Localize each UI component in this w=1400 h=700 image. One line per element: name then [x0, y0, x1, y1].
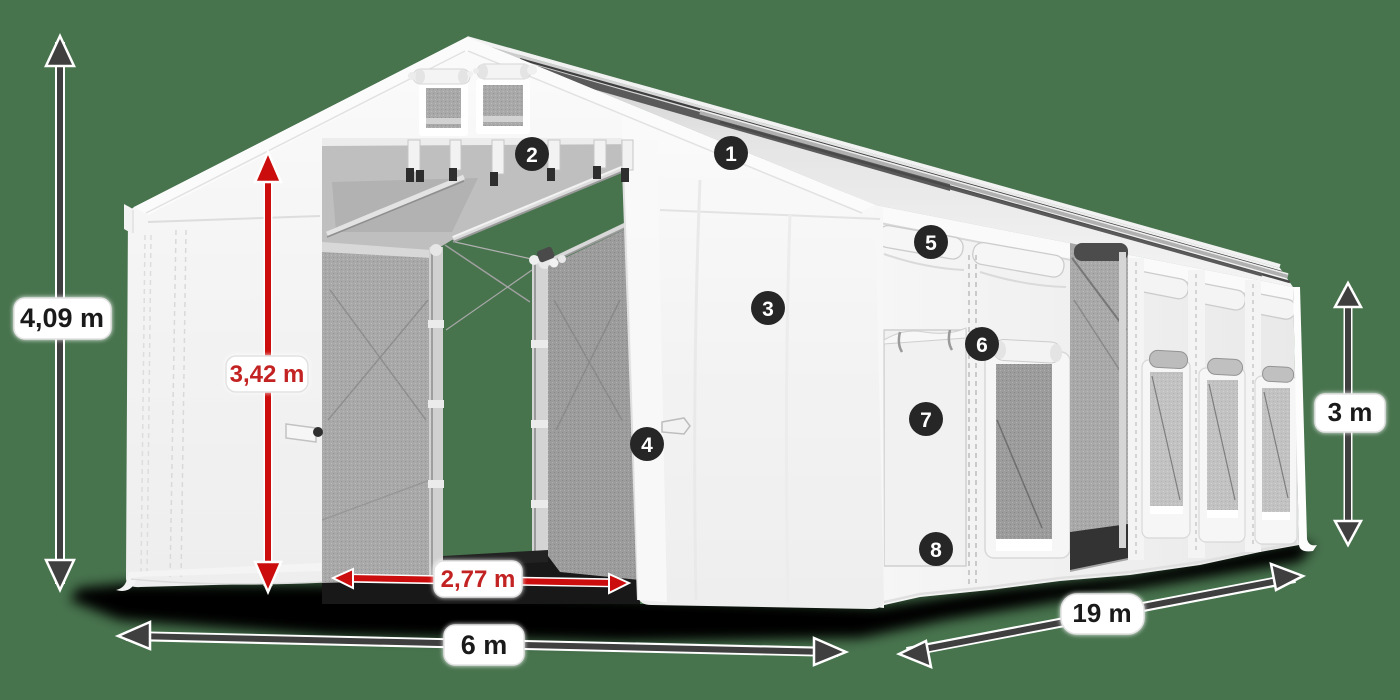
svg-text:1: 1	[725, 143, 737, 166]
svg-text:5: 5	[925, 232, 937, 255]
svg-text:7: 7	[920, 409, 932, 432]
svg-text:3 m: 3 m	[1328, 397, 1373, 427]
svg-text:19 m: 19 m	[1072, 598, 1131, 628]
svg-text:3: 3	[762, 298, 774, 321]
svg-text:3,42 m: 3,42 m	[230, 361, 305, 388]
svg-text:6 m: 6 m	[461, 630, 508, 660]
svg-text:4: 4	[641, 434, 653, 457]
svg-text:6: 6	[976, 334, 988, 357]
svg-text:8: 8	[930, 539, 942, 562]
svg-text:2,77 m: 2,77 m	[441, 566, 516, 593]
svg-text:2: 2	[526, 144, 538, 167]
svg-text:4,09 m: 4,09 m	[20, 303, 104, 333]
